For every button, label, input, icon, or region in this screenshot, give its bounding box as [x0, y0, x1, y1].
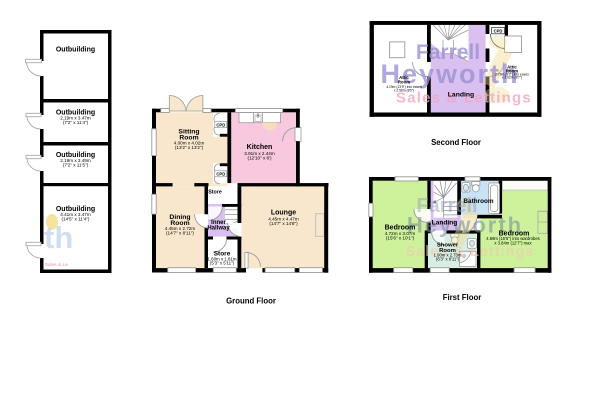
svg-text:x 3.84m (12'7") max: x 3.84m (12'7") max	[494, 241, 532, 246]
svg-text:(14'7" x 8'11"): (14'7" x 8'11")	[166, 230, 194, 235]
svg-text:(14'5" x 11'4"): (14'5" x 11'4")	[62, 217, 90, 222]
svg-text:CPD: CPD	[494, 29, 503, 34]
svg-text:Store: Store	[208, 189, 222, 195]
svg-text:(12'10" x 8'): (12'10" x 8')	[247, 156, 272, 161]
svg-text:Sales & Lettings: Sales & Lettings	[406, 244, 535, 260]
svg-text:First Floor: First Floor	[443, 293, 482, 302]
svg-text:Second Floor: Second Floor	[431, 138, 481, 147]
svg-text:(6'3" x 8'11"): (6'3" x 8'11")	[436, 257, 460, 262]
svg-text:(7'2" x 11'4"): (7'2" x 11'4")	[63, 120, 89, 125]
svg-text:x 2.62m (8'7"): x 2.62m (8'7")	[502, 76, 522, 80]
svg-text:x 2.56m (8'5"): x 2.56m (8'5")	[394, 88, 414, 92]
svg-text:Bathroom: Bathroom	[463, 198, 493, 205]
svg-text:Room: Room	[398, 79, 411, 84]
svg-text:Outbuilding: Outbuilding	[56, 47, 95, 54]
svg-text:Ground Floor: Ground Floor	[226, 297, 276, 306]
svg-text:(7'2" x 11'5"): (7'2" x 11'5")	[63, 163, 89, 168]
svg-text:Landing: Landing	[448, 92, 474, 99]
svg-text:(15'6" x 10'1"): (15'6" x 10'1")	[386, 235, 415, 240]
svg-text:Hallway: Hallway	[207, 225, 230, 231]
svg-text:Sales & Le: Sales & Le	[45, 262, 68, 267]
svg-text:th: th	[44, 220, 73, 255]
svg-text:CPD: CPD	[216, 172, 225, 177]
svg-text:(5'3" x 5'11"): (5'3" x 5'11")	[210, 261, 235, 266]
svg-text:(13'2" x 13'2"): (13'2" x 13'2")	[175, 145, 204, 150]
svg-text:(14'7" x 14'8"): (14'7" x 14'8")	[269, 221, 298, 226]
svg-text:CPD: CPD	[216, 122, 225, 127]
svg-text:Landing: Landing	[432, 220, 458, 227]
